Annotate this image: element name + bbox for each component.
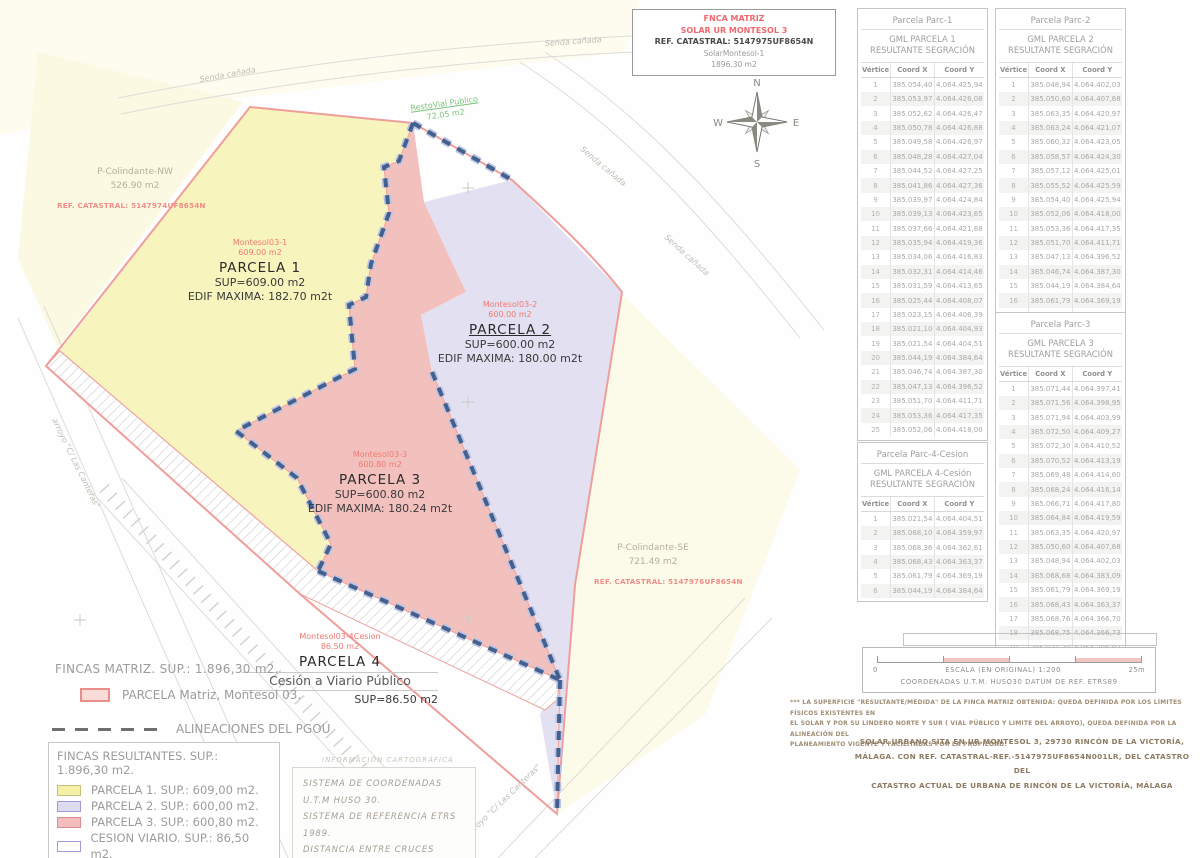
table-cell: 14: [861, 265, 891, 279]
table-header: Vértice: [999, 63, 1029, 78]
table-cell: 7: [999, 164, 1029, 178]
matriz-swatch-label: PARCELA Matriz, Montesol 03.: [122, 688, 301, 702]
table-cell: 385.052,06: [1029, 207, 1073, 221]
legend-matriz-item: PARCELA Matriz, Montesol 03.: [80, 688, 301, 702]
table-row: 8385.068,244.064.416,14: [999, 482, 1122, 496]
parcela-2-tag-area: 600.00 m2: [410, 310, 610, 320]
table-cell: 4.064.421,07: [1072, 121, 1122, 135]
table-cell: 13: [999, 554, 1029, 568]
table-cell: 385.050,60: [1029, 92, 1073, 106]
table-cell: 4.064.423,05: [1072, 135, 1122, 149]
table-cell: 385.066,71: [1029, 497, 1073, 511]
table-cell: 4.064.369,19: [1072, 293, 1122, 307]
table-row: 17385.068,764.064.366,70: [999, 612, 1122, 626]
table-row: 6385.058,574.064.424,30: [999, 150, 1122, 164]
scale-tick: [877, 656, 878, 663]
table-cell: 385.049,58: [891, 135, 935, 149]
parcela-1-sup: SUP=609.00 m2: [168, 276, 352, 290]
table-row: 15385.031,594.064.413,65: [861, 279, 984, 293]
table-title: Parcela Parc-4-Cesion: [861, 446, 984, 464]
table-cell: 4.064.414,46: [934, 265, 984, 279]
table-cell: 4: [861, 121, 891, 135]
coordinates-table-parc-2: Parcela Parc-2GML PARCELA 2RESULTANTE SE…: [995, 8, 1126, 326]
table-row: 9385.039,974.064.424,84: [861, 193, 984, 207]
carto-line-ref: SISTEMA DE REFERENCIA ETRS 1989.: [303, 809, 465, 842]
table-cell: 385.068,68: [1029, 569, 1073, 583]
table-row: 11385.037,664.064.421,68: [861, 221, 984, 235]
table-cell: 10: [999, 511, 1029, 525]
road-label-senda-4: Senda cañada: [663, 233, 711, 278]
parcela-2-tag: Montesol03-2: [410, 300, 610, 310]
table-row: 8385.041,864.064.427,36: [861, 178, 984, 192]
table-cell: 4.064.398,95: [1072, 396, 1122, 410]
table-cell: 4.064.407,68: [1072, 92, 1122, 106]
table-cell: 4: [999, 425, 1029, 439]
legend-item: CESION VIARIO. SUP.: 86,50 m2.: [57, 830, 271, 858]
table-cell: 1: [999, 77, 1029, 92]
table-cell: 4.064.417,80: [1072, 497, 1122, 511]
table-title: Parcela Parc-1: [861, 12, 984, 30]
table-cell: 385.039,97: [891, 193, 935, 207]
table-title: Parcela Parc-3: [999, 316, 1122, 334]
table-cell: 4.064.404,93: [934, 322, 984, 336]
colindante-nw-label: P-Colindante-NW 526.90 m2: [55, 166, 215, 193]
table-header: Coord X: [1029, 63, 1073, 78]
table-cell: 385.068,36: [891, 540, 935, 554]
table-cell: 385.041,86: [891, 178, 935, 192]
table-cell: 5: [999, 439, 1029, 453]
carto-line-coords: SISTEMA DE COORDENADAS U.T.M HUSO 30.: [303, 776, 465, 809]
table-cell: 385.047,13: [1029, 250, 1073, 264]
legend-swatch: [57, 785, 81, 796]
table-cell: 385.061,79: [1029, 293, 1073, 307]
compass-rose: N E S W: [713, 78, 799, 170]
parcela-3-label: Montesol03-3 600.80 m2 PARCELA 3 SUP=600…: [280, 450, 480, 516]
table-row: 3385.071,944.064.403,99: [999, 410, 1122, 424]
table-cell: 385.044,52: [891, 164, 935, 178]
table-row: 2385.071,564.064.398,95: [999, 396, 1122, 410]
table-cell: 385.044,19: [891, 584, 935, 598]
table-cell: 1: [999, 381, 1029, 396]
table-cell: 4.064.424,30: [1072, 150, 1122, 164]
table-cell: 385.032,31: [891, 265, 935, 279]
table-cell: 17: [999, 612, 1029, 626]
table-row: 21385.046,744.064.387,30: [861, 365, 984, 379]
colindante-se-label: P-Colindante-SE 721.49 m2: [588, 542, 718, 569]
scale-coordinates-note: COORDENADAS U.T.M. HUSO30 DATUM DE REF. …: [863, 678, 1155, 686]
table-cell: 2: [999, 92, 1029, 106]
table-cell: 4.064.419,59: [1072, 511, 1122, 525]
table-cell: 3: [861, 540, 891, 554]
colindante-nw-name: P-Colindante-NW: [55, 166, 215, 180]
table-row: 25385.052,064.064.418,00: [861, 423, 984, 437]
table-cell: 20: [861, 351, 891, 365]
table-row: 12385.051,704.064.411,71: [999, 236, 1122, 250]
table-cell: 385.048,94: [1029, 77, 1073, 92]
table-cell: 385.021,10: [891, 322, 935, 336]
table-row: 14385.032,314.064.414,46: [861, 265, 984, 279]
table-row: 13385.047,134.064.396,52: [999, 250, 1122, 264]
table-cell: 385.050,78: [891, 121, 935, 135]
scale-zero: 0: [873, 666, 878, 674]
table-cell: 4.064.383,09: [1072, 569, 1122, 583]
table-cell: 4.064.366,70: [1072, 612, 1122, 626]
table-header: Coord X: [1029, 367, 1073, 382]
table-cell: 385.068,43: [1029, 597, 1073, 611]
table-cell: 13: [861, 250, 891, 264]
table-cell: 385.057,12: [1029, 164, 1073, 178]
table-cell: 19: [861, 336, 891, 350]
parcela-2-label: Montesol03-2 600.00 m2 PARCELA 2 SUP=600…: [410, 300, 610, 366]
table-cell: 385.051,70: [891, 394, 935, 408]
table-row: 15385.061,794.064.369,19: [999, 583, 1122, 597]
table-row: 10385.039,134.064.423,65: [861, 207, 984, 221]
table-row: 16385.025,444.064.408,07: [861, 293, 984, 307]
table-header: Coord X: [891, 63, 935, 78]
parcela-1-edif: EDIF MAXIMA: 182.70 m2t: [168, 290, 352, 304]
table-cell: 385.068,76: [1029, 612, 1073, 626]
table-cell: 385.051,70: [1029, 236, 1073, 250]
table-row: 16385.061,794.064.369,19: [999, 293, 1122, 307]
alineaciones-label: ALINEACIONES DEL PGOU: [176, 722, 330, 736]
table-cell: 4.064.413,19: [1072, 454, 1122, 468]
table-cell: 12: [999, 236, 1029, 250]
table-cell: 2: [861, 92, 891, 106]
table-cell: 385.063,24: [1029, 121, 1073, 135]
table-cell: 16: [861, 293, 891, 307]
table-cell: 9: [999, 193, 1029, 207]
table-cell: 4.064.397,41: [1072, 381, 1122, 396]
table-cell: 8: [999, 178, 1029, 192]
table-cell: 385.068,43: [891, 555, 935, 569]
table-cell: 9: [861, 193, 891, 207]
table-cell: 4.064.416,14: [1072, 482, 1122, 496]
table-cell: 23: [861, 394, 891, 408]
table-cell: 12: [861, 236, 891, 250]
legend-item-label: PARCELA 3. SUP.: 600,80 m2.: [91, 814, 259, 830]
colindante-nw-area: 526.90 m2: [55, 180, 215, 194]
table-cell: 385.037,66: [891, 221, 935, 235]
table-row: 1385.054,404.064.425,94: [861, 77, 984, 92]
resultantes-heading: FINCAS RESULTANTES. SUP.: 1.896,30 m2.: [57, 749, 271, 777]
table-row: 11385.053,364.064.417,35: [999, 221, 1122, 235]
table-row: 2385.050,604.064.407,68: [999, 92, 1122, 106]
table-cell: 6: [999, 150, 1029, 164]
legend-item-label: CESION VIARIO. SUP.: 86,50 m2.: [91, 830, 271, 858]
table-cell: 385.054,40: [1029, 193, 1073, 207]
scale-max: 25m: [1129, 666, 1145, 674]
parcela-1-name: PARCELA 1: [168, 260, 352, 276]
table-cell: 8: [999, 482, 1029, 496]
carto-line-dist: DISTANCIA ENTRE CRUCES 25,00 m.: [303, 842, 465, 858]
table-row: 1385.048,944.064.402,03: [999, 77, 1122, 92]
table-row: 19385.021,544.064.404,51: [861, 336, 984, 350]
table-cell: 4.064.402,03: [1072, 77, 1122, 92]
parcela-1-tag: Montesol03-1: [168, 238, 352, 248]
scale-label: ESCALA (EN ORIGINAL) 1:200: [945, 666, 1061, 674]
table-cell: 4.064.416,83: [934, 250, 984, 264]
table-cell: 4.064.421,68: [934, 221, 984, 235]
table-cell: 4.064.417,35: [1072, 221, 1122, 235]
table-cell: 385.061,79: [1029, 583, 1073, 597]
table-cell: 385.044,19: [1029, 279, 1073, 293]
title-solar: SOLAR UR MONTESOL 3: [633, 25, 835, 37]
parcela-1-label: Montesol03-1 609.00 m2 PARCELA 1 SUP=609…: [168, 238, 352, 304]
table-cell: 385.071,56: [1029, 396, 1073, 410]
table-cell: 4.064.425,94: [1072, 193, 1122, 207]
colindante-se-name: P-Colindante-SE: [588, 542, 718, 556]
colindante-se-area: 721.49 m2: [588, 556, 718, 570]
table-cell: 4.064.396,52: [934, 380, 984, 394]
table-cell: 385.064,84: [1029, 511, 1073, 525]
coordinates-table-parc-4-cesion: Parcela Parc-4-CesionGML PARCELA 4-Cesió…: [857, 442, 988, 602]
dashed-line-sample: [52, 728, 164, 731]
table-cell: 4.064.408,07: [934, 293, 984, 307]
table-cell: 10: [999, 207, 1029, 221]
table-cell: 4: [999, 121, 1029, 135]
table-row: 13385.048,944.064.402,03: [999, 554, 1122, 568]
table-cell: 4.064.384,64: [1072, 279, 1122, 293]
road-label-senda-3: Senda cañada: [579, 145, 628, 188]
compass-s: S: [754, 159, 760, 170]
table-row: 10385.064,844.064.419,59: [999, 511, 1122, 525]
table-cell: 14: [999, 265, 1029, 279]
table-cell: 4.064.363,37: [934, 555, 984, 569]
title-finca-matriz: FNCA MATRIZ: [633, 13, 835, 25]
table-header: Coord Y: [934, 63, 984, 78]
table-row: 5385.060,324.064.423,05: [999, 135, 1122, 149]
parcela-4-tag: Montesol03-4Cesion: [242, 632, 438, 642]
table-cell: 385.053,36: [1029, 221, 1073, 235]
table-cell: 385.046,74: [891, 365, 935, 379]
table-cell: 4.064.363,37: [1072, 597, 1122, 611]
table-row: 14385.046,744.064.387,30: [999, 265, 1122, 279]
table-cell: 4.064.413,65: [934, 279, 984, 293]
table-subtitle: GML PARCELA 1RESULTANTE SEGRACIÓN: [861, 30, 984, 63]
table-cell: 4.064.420,97: [1072, 106, 1122, 120]
title-solar-name: SolarMontesol-1: [633, 48, 835, 59]
table-header: Vértice: [999, 367, 1029, 382]
table-cell: 385.021,54: [891, 511, 935, 526]
matriz-swatch: [80, 688, 110, 702]
table-cell: 4.064.406,39: [934, 308, 984, 322]
table-row: 6385.070,524.064.413,19: [999, 454, 1122, 468]
table-cell: 9: [999, 497, 1029, 511]
table-cell: 385.048,94: [1029, 554, 1073, 568]
table-cell: 15: [999, 279, 1029, 293]
scale-tick: [1075, 656, 1076, 663]
table-cell: 6: [861, 584, 891, 598]
table-cell: 18: [861, 322, 891, 336]
table-cell: 385.048,28: [891, 150, 935, 164]
cartography-box: SISTEMA DE COORDENADAS U.T.M HUSO 30. SI…: [292, 767, 476, 858]
table-cell: 385.055,52: [1029, 178, 1073, 192]
parcela-3-edif: EDIF MAXIMA: 180.24 m2t: [280, 502, 480, 516]
table-cell: 8: [861, 178, 891, 192]
table-header: Coord Y: [1072, 367, 1122, 382]
table-cell: 4.064.407,68: [1072, 540, 1122, 554]
table-cell: 10: [861, 207, 891, 221]
table-cell: 4.064.411,71: [1072, 236, 1122, 250]
table-cell: 4.064.414,60: [1072, 468, 1122, 482]
table-cell: 11: [861, 221, 891, 235]
table-cell: 16: [999, 597, 1029, 611]
table-cell: 4.064.425,01: [1072, 164, 1122, 178]
table-cell: 4.064.417,35: [934, 408, 984, 422]
compass-e: E: [793, 118, 799, 129]
table-row: 7385.069,484.064.414,60: [999, 468, 1122, 482]
scale-outer-rect: [903, 633, 1157, 646]
table-row: 5385.049,584.064.426,97: [861, 135, 984, 149]
legend-item-label: PARCELA 1. SUP.: 609,00 m2.: [91, 782, 259, 798]
table-cell: 385.063,35: [1029, 106, 1073, 120]
scale-tick: [1141, 656, 1142, 663]
table-subtitle: GML PARCELA 3RESULTANTE SEGRACIÓN: [999, 334, 1122, 367]
table-cell: 15: [999, 583, 1029, 597]
table-cell: 4.064.396,52: [1072, 250, 1122, 264]
table-cell: 4.064.418,00: [934, 423, 984, 437]
table-cell: 21: [861, 365, 891, 379]
table-cell: 25: [861, 423, 891, 437]
table-row: 2385.068,104.064.359,97: [861, 526, 984, 540]
table-cell: 5: [861, 135, 891, 149]
table-cell: 385.052,62: [891, 106, 935, 120]
scale-tick: [1009, 656, 1010, 663]
table-row: 6385.044,194.064.384,64: [861, 584, 984, 598]
table-cell: 16: [999, 293, 1029, 307]
table-cell: 11: [999, 221, 1029, 235]
table-row: 6385.048,284.064.427,04: [861, 150, 984, 164]
legend-swatch: [57, 841, 81, 852]
table-row: 8385.055,524.064.425,59: [999, 178, 1122, 192]
table-row: 11385.063,354.064.420,97: [999, 525, 1122, 539]
table-cell: 5: [999, 135, 1029, 149]
cadastral-plan-sheet: Senda cañada Senda cañada Senda cañada S…: [0, 0, 1200, 858]
table-row: 13385.034,064.064.416,83: [861, 250, 984, 264]
table-row: 18385.021,104.064.404,93: [861, 322, 984, 336]
table-row: 9385.066,714.064.417,80: [999, 497, 1122, 511]
parcela-2-edif: EDIF MAXIMA: 180.00 m2t: [410, 352, 610, 366]
table-cell: 385.063,35: [1029, 525, 1073, 539]
table-cell: 4.064.423,65: [934, 207, 984, 221]
table-cell: 7: [999, 468, 1029, 482]
compass-w: W: [713, 118, 723, 129]
table-cell: 385.046,74: [1029, 265, 1073, 279]
table-cell: 4.064.387,30: [1072, 265, 1122, 279]
table-cell: 15: [861, 279, 891, 293]
table-row: 14385.068,684.064.383,09: [999, 569, 1122, 583]
table-cell: 4.064.387,30: [934, 365, 984, 379]
scale-bar: 0 ESCALA (EN ORIGINAL) 1:200 25m COORDEN…: [862, 647, 1156, 693]
table-cell: 4.064.369,19: [934, 569, 984, 583]
table-row: 7385.044,524.064.427,25: [861, 164, 984, 178]
table-cell: 4.064.409,27: [1072, 425, 1122, 439]
table-cell: 385.071,44: [1029, 381, 1073, 396]
table-cell: 385.072,50: [1029, 425, 1073, 439]
table-cell: 385.034,06: [891, 250, 935, 264]
table-cell: 1: [861, 511, 891, 526]
colindante-se-ref: REF. CATASTRAL: 5147976UF8654N: [594, 577, 743, 586]
table-cell: 2: [861, 526, 891, 540]
table-row: 10385.052,064.064.418,00: [999, 207, 1122, 221]
table-cell: 4.064.420,97: [1072, 525, 1122, 539]
table-row: 4385.068,434.064.363,37: [861, 555, 984, 569]
table-cell: 385.021,54: [891, 336, 935, 350]
parcela-2-sup: SUP=600.00 m2: [410, 338, 610, 352]
table-cell: 4.064.426,88: [934, 121, 984, 135]
table-cell: 385.071,94: [1029, 410, 1073, 424]
table-row: 20385.044,194.064.384,64: [861, 351, 984, 365]
table-cell: 385.039,13: [891, 207, 935, 221]
table-cell: 385.068,10: [891, 526, 935, 540]
table-row: 15385.044,194.064.384,64: [999, 279, 1122, 293]
table-header: Vértice: [861, 497, 891, 512]
table-row: 3385.052,624.064.426,47: [861, 106, 984, 120]
legend-item: PARCELA 2. SUP.: 600,00 m2.: [57, 798, 271, 814]
table-header: Vértice: [861, 63, 891, 78]
table-row: 1385.071,444.064.397,41: [999, 381, 1122, 396]
table-cell: 4.064.427,36: [934, 178, 984, 192]
table-cell: 4.064.404,51: [934, 336, 984, 350]
coordinates-table-parc-1: Parcela Parc-1GML PARCELA 1RESULTANTE SE…: [857, 8, 988, 441]
table-cell: 385.025,44: [891, 293, 935, 307]
table-cell: 5: [861, 569, 891, 583]
table-cell: 2: [999, 396, 1029, 410]
legend-fincas-matriz-heading: FINCAS MATRIZ. SUP.: 1.896,30 m2.: [55, 662, 279, 676]
table-cell: 385.031,59: [891, 279, 935, 293]
table-row: 23385.051,704.064.411,71: [861, 394, 984, 408]
table-title: Parcela Parc-2: [999, 12, 1122, 30]
table-row: 3385.063,354.064.420,97: [999, 106, 1122, 120]
title-area: 1896.30 m2: [633, 59, 835, 70]
table-cell: 4.064.359,97: [934, 526, 984, 540]
table-cell: 385.035,94: [891, 236, 935, 250]
table-cell: 4.064.404,51: [934, 511, 984, 526]
table-row: 17385.023,154.064.406,39: [861, 308, 984, 322]
table-cell: 24: [861, 408, 891, 422]
legend-fincas-resultantes: FINCAS RESULTANTES. SUP.: 1.896,30 m2. P…: [48, 742, 280, 858]
table-cell: 385.053,36: [891, 408, 935, 422]
table-row: 1385.021,544.064.404,51: [861, 511, 984, 526]
table-cell: 385.060,32: [1029, 135, 1073, 149]
table-row: 12385.050,604.064.407,68: [999, 540, 1122, 554]
table-cell: 6: [861, 150, 891, 164]
table-row: 22385.047,134.064.396,52: [861, 380, 984, 394]
parcela-3-tag-area: 600.80 m2: [280, 460, 480, 470]
table-cell: 385.072,30: [1029, 439, 1073, 453]
table-cell: 4: [861, 555, 891, 569]
stream-label-south: arroyo "C/ Las Canteras": [465, 762, 542, 837]
table-cell: 4.064.427,25: [934, 164, 984, 178]
stream-label-west: arroyo "C/ Las Canteras": [50, 417, 101, 510]
table-cell: 4.064.418,00: [1072, 207, 1122, 221]
compass-n: N: [753, 78, 760, 89]
table-row: 12385.035,944.064.419,36: [861, 236, 984, 250]
table-row: 24385.053,364.064.417,35: [861, 408, 984, 422]
table-cell: 385.044,19: [891, 351, 935, 365]
legend-item: PARCELA 3. SUP.: 600,80 m2.: [57, 814, 271, 830]
parcela-3-sup: SUP=600.80 m2: [280, 488, 480, 502]
table-cell: 385.058,57: [1029, 150, 1073, 164]
resultantes-items: PARCELA 1. SUP.: 609,00 m2.PARCELA 2. SU…: [57, 782, 271, 858]
table-cell: 4.064.426,47: [934, 106, 984, 120]
table-cell: 1: [861, 77, 891, 92]
table-cell: 3: [999, 106, 1029, 120]
legend-swatch: [57, 817, 81, 828]
table-cell: 4.064.424,84: [934, 193, 984, 207]
parcela-1-tag-area: 609.00 m2: [168, 248, 352, 258]
table-row: 4385.072,504.064.409,27: [999, 425, 1122, 439]
